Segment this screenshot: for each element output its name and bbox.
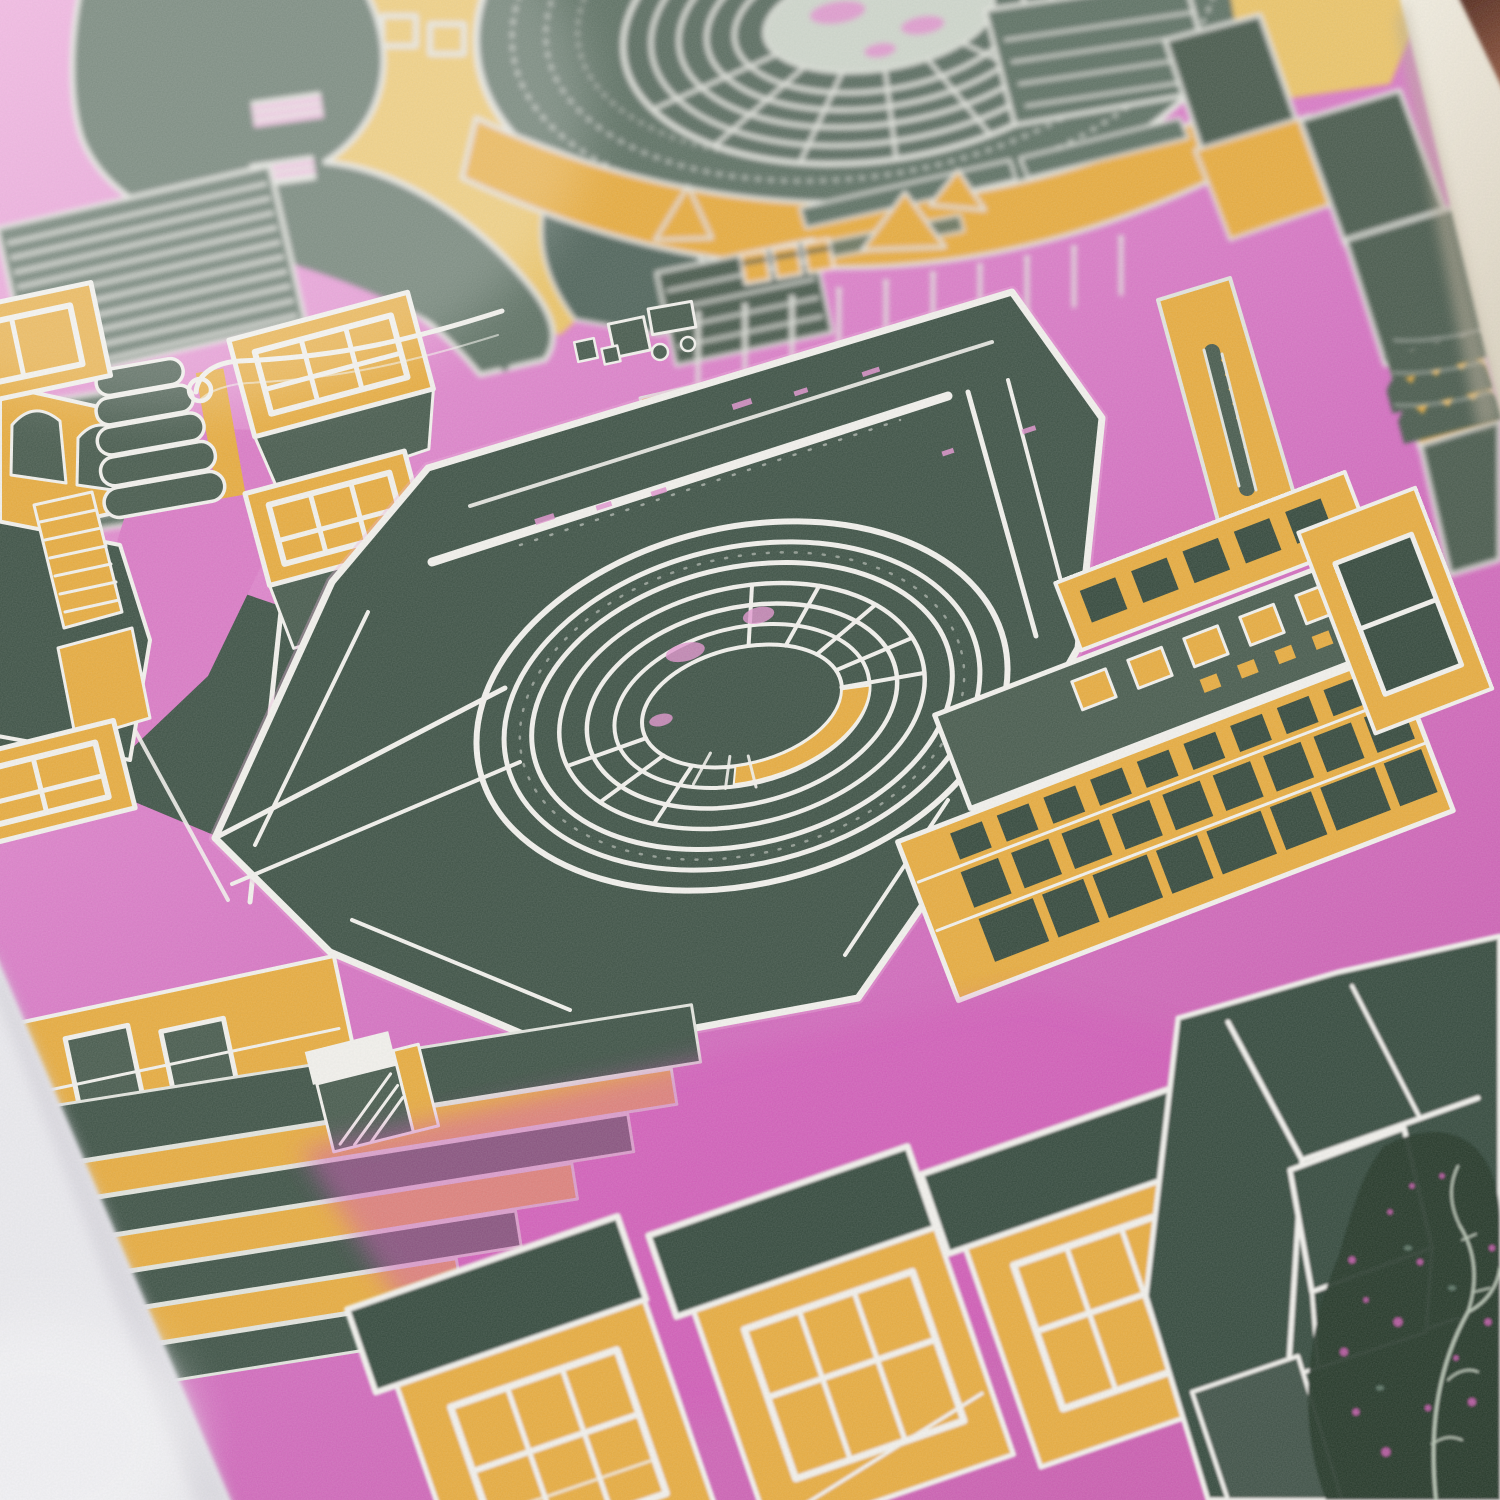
risograph-print-photo (0, 0, 1500, 1500)
print-artwork (0, 0, 1500, 1500)
